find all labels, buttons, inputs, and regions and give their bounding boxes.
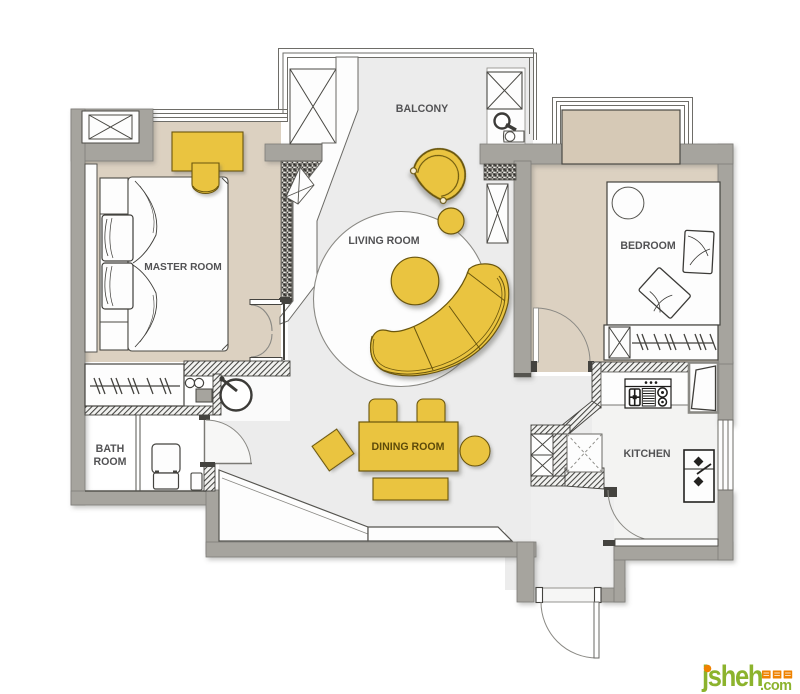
svg-text:ROOM: ROOM — [94, 456, 127, 468]
svg-text:MASTER ROOM: MASTER ROOM — [144, 262, 222, 273]
svg-text:.com: .com — [760, 678, 791, 694]
svg-text:KITCHEN: KITCHEN — [623, 448, 670, 460]
svg-text:LIVING ROOM: LIVING ROOM — [348, 235, 419, 247]
svg-text:BEDROOM: BEDROOM — [620, 240, 675, 252]
svg-text:DINING ROOM: DINING ROOM — [372, 441, 445, 453]
svg-text:jsheh: jsheh — [701, 659, 762, 692]
svg-text:BATH: BATH — [96, 443, 125, 455]
svg-text:BALCONY: BALCONY — [396, 103, 448, 115]
